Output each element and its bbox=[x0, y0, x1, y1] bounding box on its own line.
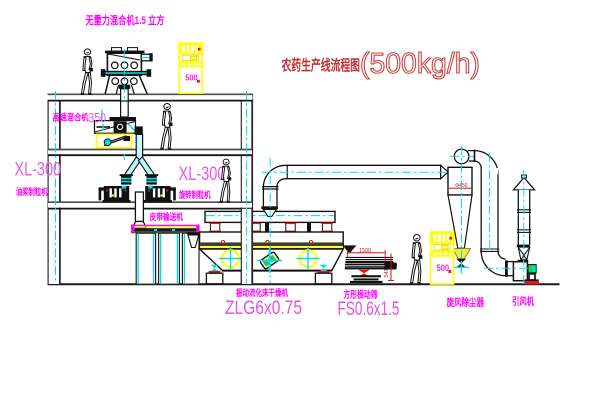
svg-text:皮带输送机: 皮带输送机 bbox=[149, 211, 183, 222]
svg-text:旋转制粒机: 旋转制粒机 bbox=[178, 189, 210, 200]
svg-text:ZLG6x0.75: ZLG6x0.75 bbox=[225, 298, 302, 319]
svg-text:1500: 1500 bbox=[359, 248, 371, 254]
svg-text:(500kg/h): (500kg/h) bbox=[360, 48, 480, 80]
svg-text:无重力混合机1.5 立方: 无重力混合机1.5 立方 bbox=[85, 13, 165, 27]
svg-text:350: 350 bbox=[89, 110, 107, 126]
svg-text:旋风除尘器: 旋风除尘器 bbox=[446, 296, 485, 309]
svg-text:XL-300: XL-300 bbox=[15, 160, 62, 181]
svg-text:振动流化床干燥机: 振动流化床干燥机 bbox=[236, 287, 288, 298]
svg-text:高速混合机: 高速混合机 bbox=[53, 112, 89, 123]
svg-text:引风机: 引风机 bbox=[512, 295, 534, 308]
svg-text:541: 541 bbox=[384, 268, 390, 277]
svg-text:FS0.6x1.5: FS0.6x1.5 bbox=[338, 299, 400, 320]
svg-text:农药生产线流程图: 农药生产线流程图 bbox=[281, 57, 360, 75]
svg-text:油桨制粒机: 油桨制粒机 bbox=[16, 186, 48, 197]
svg-text:XL-300: XL-300 bbox=[179, 164, 226, 185]
